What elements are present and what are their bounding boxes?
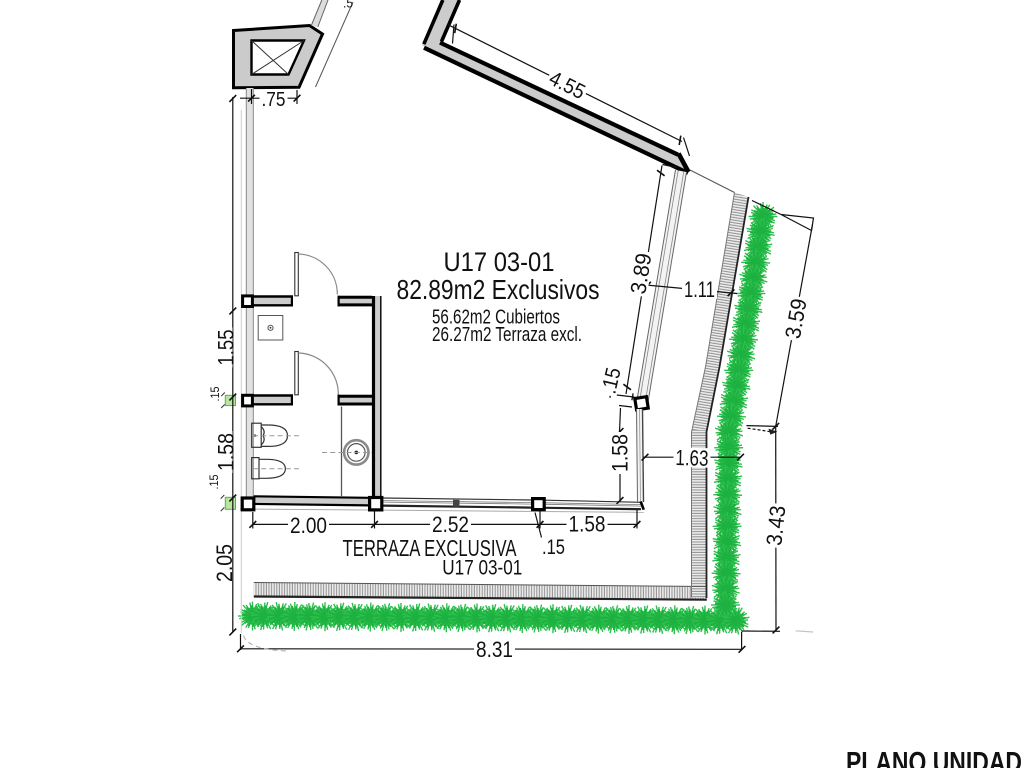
svg-text:2.52: 2.52 — [432, 512, 469, 537]
svg-text:1.58: 1.58 — [569, 512, 606, 537]
svg-text:82.89m2 Exclusivos: 82.89m2 Exclusivos — [397, 274, 600, 305]
svg-text:PLANO UNIDAD: PLANO UNIDAD — [846, 747, 1022, 768]
svg-text:.5: .5 — [343, 0, 353, 11]
svg-text:2.00: 2.00 — [290, 513, 327, 538]
svg-text:1.63: 1.63 — [675, 445, 709, 471]
svg-text:8.31: 8.31 — [476, 637, 513, 662]
svg-text:1.58: 1.58 — [607, 434, 632, 472]
svg-text:1.11: 1.11 — [684, 277, 715, 302]
svg-text:1.55: 1.55 — [213, 330, 238, 366]
svg-text:3.43: 3.43 — [761, 504, 790, 546]
svg-text:.15: .15 — [207, 474, 221, 489]
svg-text:.15: .15 — [208, 386, 222, 401]
svg-text:U17 03-01: U17 03-01 — [444, 247, 555, 277]
svg-text:.15: .15 — [542, 536, 565, 559]
svg-text:26.27m2 Terraza excl.: 26.27m2 Terraza excl. — [432, 324, 582, 346]
svg-text:1.58: 1.58 — [213, 433, 238, 471]
svg-text:2.05: 2.05 — [212, 544, 237, 582]
svg-text:U17 03-01: U17 03-01 — [442, 557, 522, 580]
svg-text:.75: .75 — [262, 89, 286, 111]
